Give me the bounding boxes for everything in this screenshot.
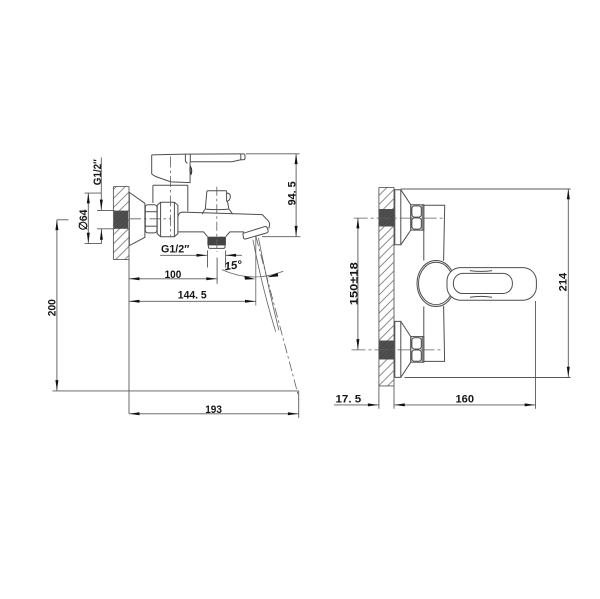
svg-text:150±18: 150±18 bbox=[348, 262, 360, 305]
svg-text:94. 5: 94. 5 bbox=[286, 181, 298, 205]
svg-text:G1/2″: G1/2″ bbox=[92, 159, 104, 186]
svg-text:100: 100 bbox=[165, 269, 182, 281]
svg-text:160: 160 bbox=[456, 394, 475, 406]
svg-text:G1/2″: G1/2″ bbox=[161, 243, 190, 255]
svg-text:∅64: ∅64 bbox=[78, 209, 90, 230]
svg-text:144. 5: 144. 5 bbox=[178, 290, 207, 302]
svg-text:193: 193 bbox=[205, 404, 222, 416]
svg-text:15°: 15° bbox=[224, 259, 243, 273]
svg-text:17. 5: 17. 5 bbox=[336, 394, 362, 406]
svg-text:214: 214 bbox=[558, 272, 570, 291]
svg-text:200: 200 bbox=[46, 299, 58, 316]
